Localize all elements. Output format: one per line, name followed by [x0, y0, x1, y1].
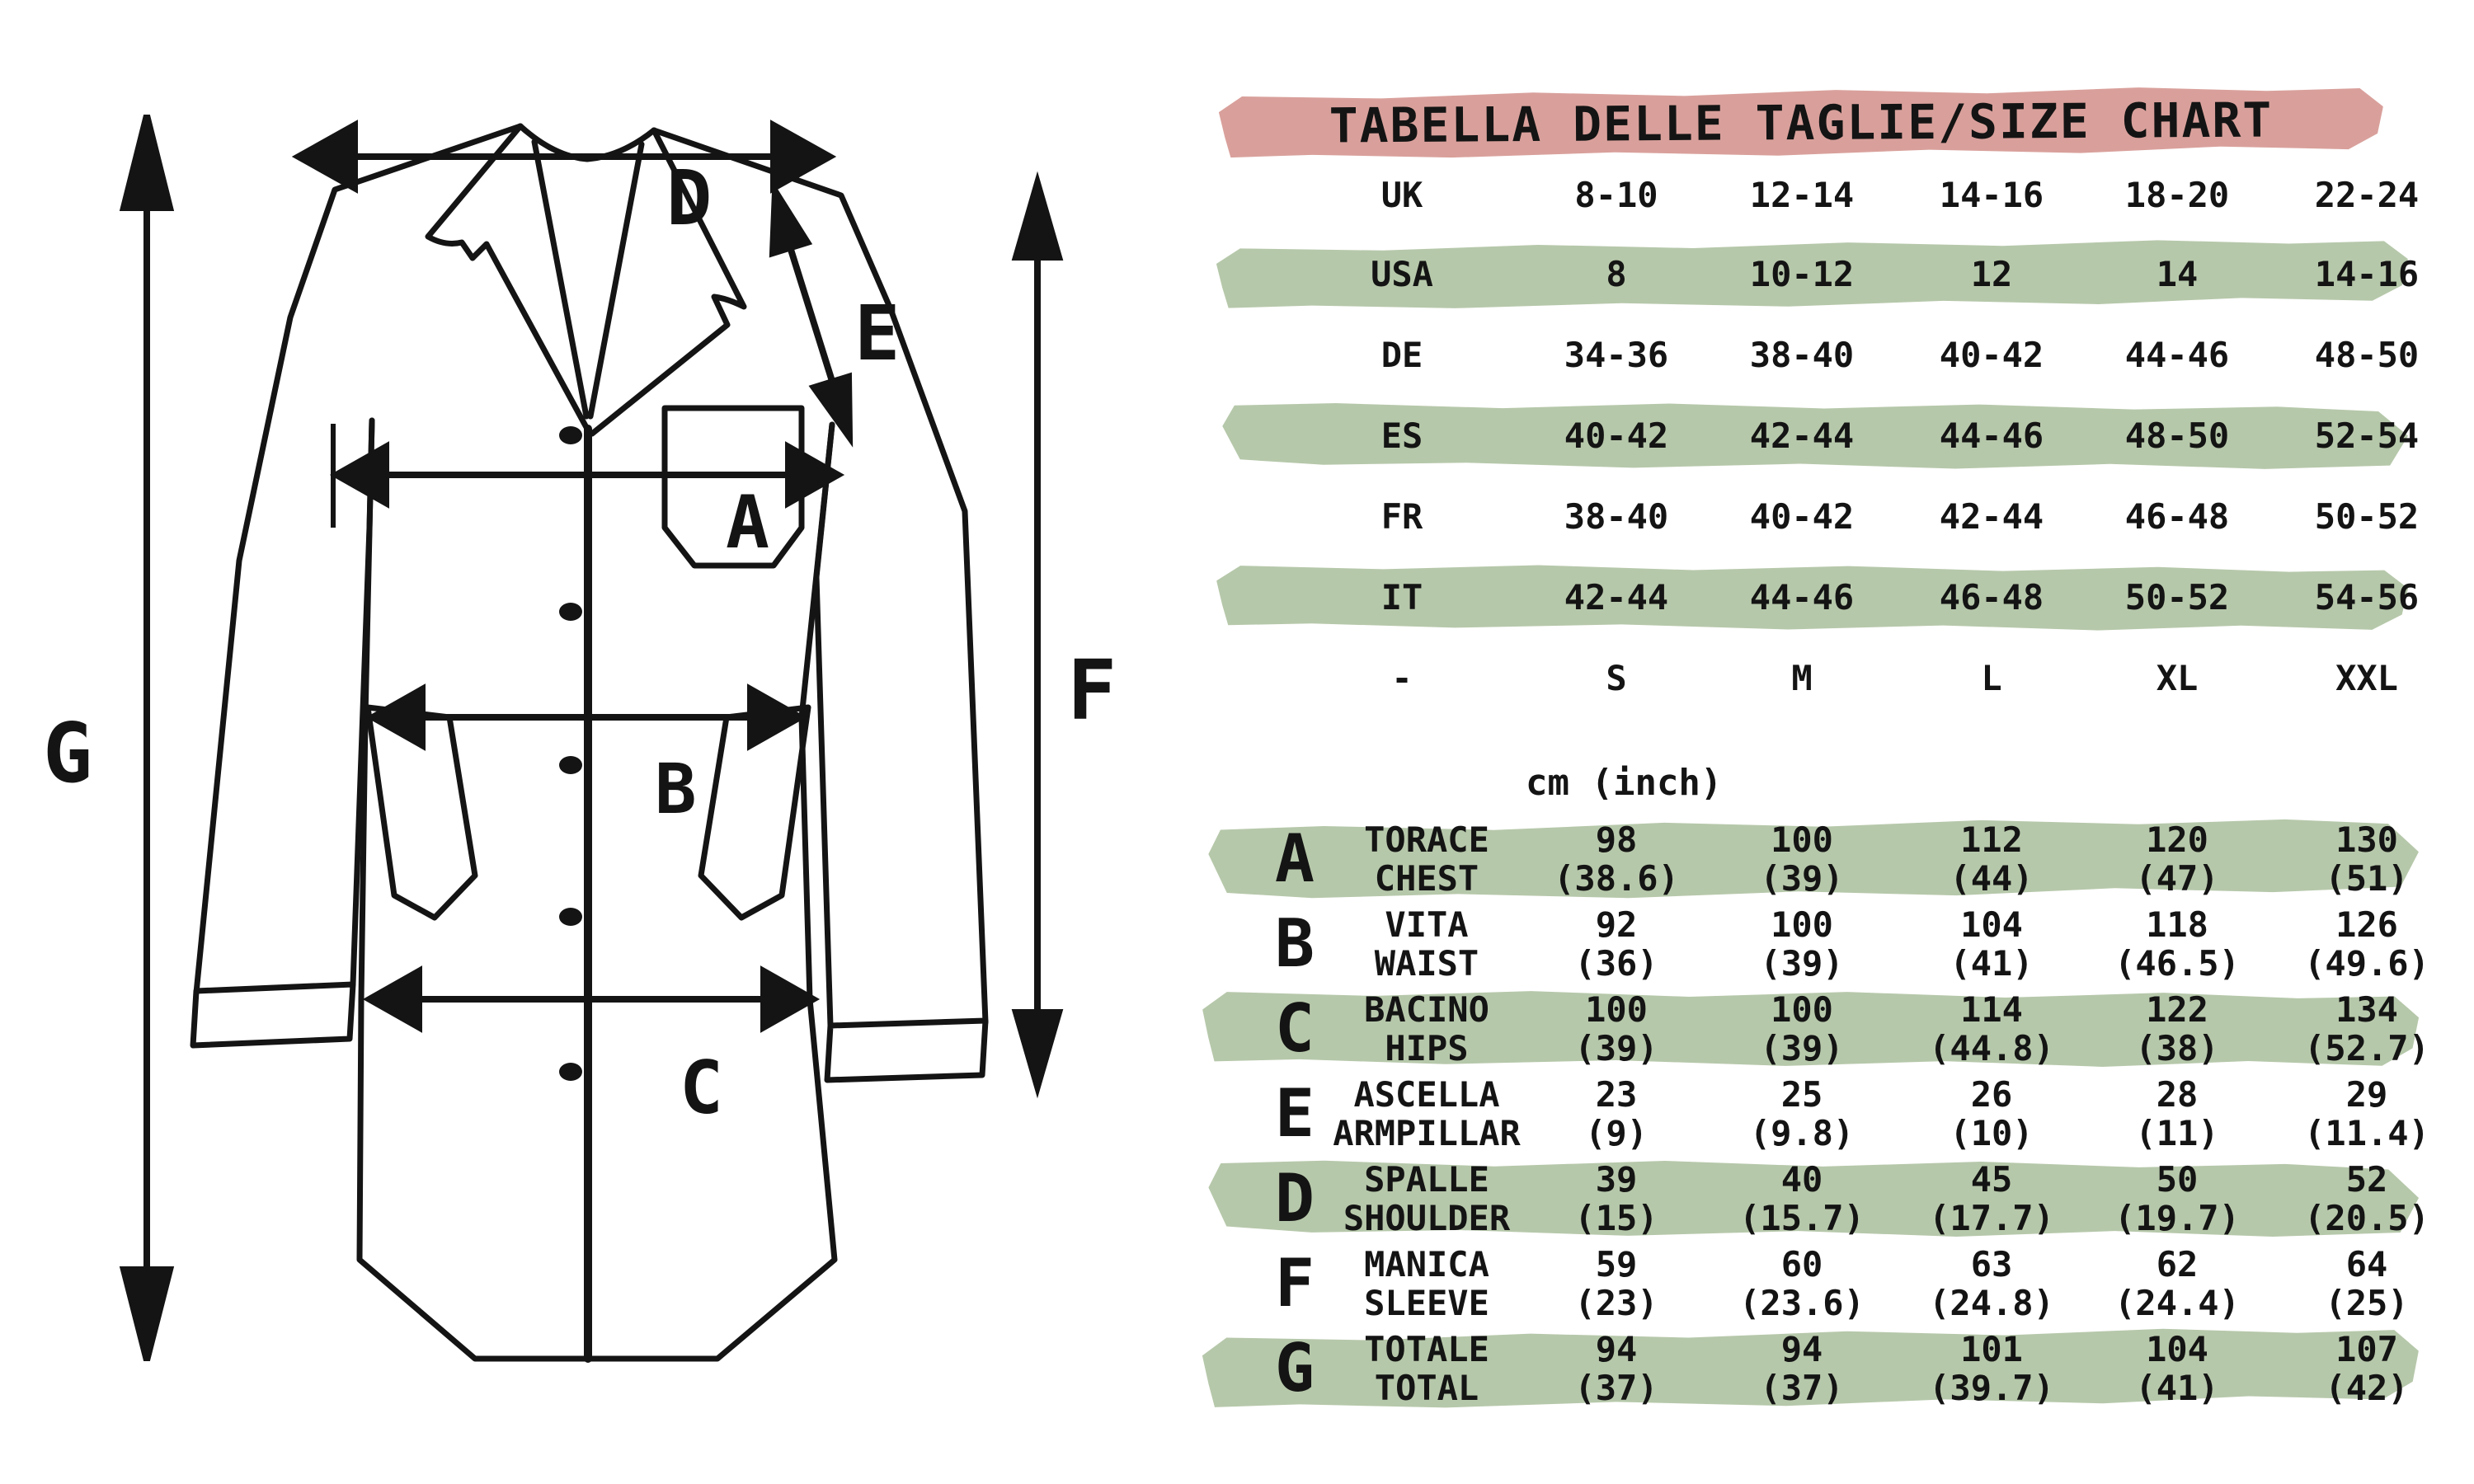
diagram-label-f: F — [1067, 642, 1117, 739]
value-inch: (37) — [1711, 1369, 1893, 1407]
value-cm: 94 — [1526, 1330, 1707, 1369]
arrow-g — [124, 115, 170, 1360]
measurement-value: 120 (47) — [2086, 818, 2268, 900]
value-inch: (38) — [2086, 1029, 2268, 1068]
label-italian: TOTALE — [1328, 1330, 1526, 1369]
buttons — [559, 426, 582, 1081]
value-cm: 100 — [1711, 820, 1893, 859]
chart-title: TABELLA DELLE TAGLIE/SIZE CHART — [1219, 84, 2383, 162]
size-region-label: FR — [1262, 484, 1542, 550]
label-english: TOTAL — [1328, 1369, 1526, 1407]
size-value: 54-56 — [2276, 565, 2458, 631]
arrow-f — [1016, 183, 1059, 1087]
value-inch: (39) — [1526, 1029, 1707, 1068]
value-inch: (41) — [2086, 1369, 2268, 1407]
right-sleeve-inner — [816, 425, 832, 1026]
size-value: M — [1711, 646, 1893, 711]
measurement-value: 118 (46.5) — [2086, 903, 2268, 985]
garment-diagram: G D E A B C F — [0, 0, 1196, 1484]
arrow-e — [773, 191, 849, 437]
measurement-value: 50 (19.7) — [2086, 1158, 2268, 1240]
value-inch: (39.7) — [1901, 1369, 2082, 1407]
size-value: 10-12 — [1711, 242, 1893, 308]
size-value: 8-10 — [1526, 162, 1707, 228]
value-inch: (39) — [1711, 859, 1893, 898]
measurement-value: 112 (44) — [1901, 818, 2082, 900]
label-english: ARMPILLAR — [1328, 1114, 1526, 1153]
size-row-international: - S M L XL XXL — [1221, 646, 2412, 711]
label-english: WAIST — [1328, 944, 1526, 983]
measurement-value: 104 (41) — [2086, 1327, 2268, 1410]
size-value: 38-40 — [1526, 484, 1707, 550]
value-cm: 39 — [1526, 1160, 1707, 1199]
measurement-value: 62 (24.4) — [2086, 1242, 2268, 1325]
measurement-row-total: G TOTALE TOTAL 94 (37) 94 (37) 101 (39.7… — [1221, 1327, 2412, 1410]
size-chart-page: G D E A B C F TABELLA DELLE TAGLIE/SIZE … — [0, 0, 2474, 1484]
measurement-label: MANICA SLEEVE — [1328, 1242, 1526, 1325]
value-inch: (11) — [2086, 1114, 2268, 1153]
measurement-row-hips: C BACINO HIPS 100 (39) 100 (39) 114 (44.… — [1221, 988, 2412, 1070]
diagram-label-g: G — [43, 705, 92, 801]
size-value: XXL — [2276, 646, 2458, 711]
size-value: 8 — [1526, 242, 1707, 308]
measurement-value: 100 (39) — [1526, 988, 1707, 1070]
size-value: 52-54 — [2276, 403, 2458, 469]
value-inch: (15.7) — [1711, 1199, 1893, 1237]
value-cm: 101 — [1901, 1330, 2082, 1369]
size-row-it: IT 42-44 44-46 46-48 50-52 54-56 — [1221, 565, 2412, 631]
value-cm: 100 — [1711, 905, 1893, 944]
value-inch: (42) — [2276, 1369, 2458, 1407]
value-cm: 64 — [2276, 1245, 2458, 1284]
value-cm: 62 — [2086, 1245, 2268, 1284]
size-value: 40-42 — [1901, 322, 2082, 388]
label-italian: BACINO — [1328, 990, 1526, 1029]
measurement-row-waist: B VITA WAIST 92 (36) 100 (39) 104 (41) 1… — [1221, 903, 2412, 985]
label-english: HIPS — [1328, 1029, 1526, 1068]
size-value: 12-14 — [1711, 162, 1893, 228]
measurement-row-chest: A TORACE CHEST 98 (38.6) 100 (39) 112 (4… — [1221, 818, 2412, 900]
measurement-value: 40 (15.7) — [1711, 1158, 1893, 1240]
value-inch: (51) — [2276, 859, 2458, 898]
value-inch: (39) — [1711, 944, 1893, 983]
size-value: 38-40 — [1711, 322, 1893, 388]
label-italian: SPALLE — [1328, 1160, 1526, 1199]
size-chart-panel: TABELLA DELLE TAGLIE/SIZE CHART UK 8-10 … — [1196, 0, 2474, 1484]
size-value: 44-46 — [1901, 403, 2082, 469]
measurement-value: 114 (44.8) — [1901, 988, 2082, 1070]
value-inch: (9.8) — [1711, 1114, 1893, 1153]
size-value: 46-48 — [1901, 565, 2082, 631]
left-lapel — [428, 126, 588, 430]
value-inch: (38.6) — [1526, 859, 1707, 898]
size-value: 40-42 — [1526, 403, 1707, 469]
measurement-value: 45 (17.7) — [1901, 1158, 2082, 1240]
measurement-label: SPALLE SHOULDER — [1328, 1158, 1526, 1240]
measurement-value: 28 (11) — [2086, 1073, 2268, 1155]
measurement-value: 134 (52.7) — [2276, 988, 2458, 1070]
value-inch: (9) — [1526, 1114, 1707, 1153]
label-italian: VITA — [1328, 905, 1526, 944]
label-english: SHOULDER — [1328, 1199, 1526, 1237]
size-value: 44-46 — [1711, 565, 1893, 631]
button — [559, 756, 582, 774]
measurement-value: 94 (37) — [1711, 1327, 1893, 1410]
value-cm: 100 — [1711, 990, 1893, 1029]
value-cm: 120 — [2086, 820, 2268, 859]
value-cm: 63 — [1901, 1245, 2082, 1284]
value-cm: 50 — [2086, 1160, 2268, 1199]
size-value: 42-44 — [1901, 484, 2082, 550]
button — [559, 426, 582, 444]
measurement-value: 107 (42) — [2276, 1327, 2458, 1410]
chart-title-text: TABELLA DELLE TAGLIE/SIZE CHART — [1329, 92, 2274, 154]
size-region-label: USA — [1262, 242, 1542, 308]
value-inch: (24.4) — [2086, 1284, 2268, 1322]
measurement-value: 26 (10) — [1901, 1073, 2082, 1155]
value-cm: 52 — [2276, 1160, 2458, 1199]
neckline-right — [590, 144, 642, 416]
value-cm: 98 — [1526, 820, 1707, 859]
measurement-value: 100 (39) — [1711, 988, 1893, 1070]
size-value: S — [1526, 646, 1707, 711]
measurement-value: 23 (9) — [1526, 1073, 1707, 1155]
value-cm: 28 — [2086, 1075, 2268, 1114]
measurement-value: 130 (51) — [2276, 818, 2458, 900]
value-cm: 94 — [1711, 1330, 1893, 1369]
measurement-row-shoulder: D SPALLE SHOULDER 39 (15) 40 (15.7) 45 (… — [1221, 1158, 2412, 1240]
button — [559, 1063, 582, 1081]
value-inch: (11.4) — [2276, 1114, 2458, 1153]
size-region-label: UK — [1262, 162, 1542, 228]
value-inch: (37) — [1526, 1369, 1707, 1407]
right-cuff — [827, 1021, 985, 1080]
value-cm: 107 — [2276, 1330, 2458, 1369]
measurement-value: 60 (23.6) — [1711, 1242, 1893, 1325]
label-italian: ASCELLA — [1328, 1075, 1526, 1114]
value-inch: (47) — [2086, 859, 2268, 898]
value-cm: 23 — [1526, 1075, 1707, 1114]
size-value: 50-52 — [2276, 484, 2458, 550]
size-row-es: ES 40-42 42-44 44-46 48-50 52-54 — [1221, 403, 2412, 469]
size-region-label: ES — [1262, 403, 1542, 469]
measurement-value: 39 (15) — [1526, 1158, 1707, 1240]
diagram-label-d: D — [666, 154, 712, 242]
label-english: SLEEVE — [1328, 1284, 1526, 1322]
measurement-value: 100 (39) — [1711, 818, 1893, 900]
measurement-label: TOTALE TOTAL — [1328, 1327, 1526, 1410]
value-cm: 59 — [1526, 1245, 1707, 1284]
size-region-label: - — [1262, 646, 1542, 711]
measurement-label: ASCELLA ARMPILLAR — [1328, 1073, 1526, 1155]
value-cm: 29 — [2276, 1075, 2458, 1114]
size-value: L — [1901, 646, 2082, 711]
value-inch: (36) — [1526, 944, 1707, 983]
value-inch: (49.6) — [2276, 944, 2458, 983]
size-row-usa: USA 8 10-12 12 14 14-16 — [1221, 242, 2412, 308]
size-value: 22-24 — [2276, 162, 2458, 228]
measurement-value: 29 (11.4) — [2276, 1073, 2458, 1155]
size-value: 48-50 — [2086, 403, 2268, 469]
measurement-value: 25 (9.8) — [1711, 1073, 1893, 1155]
size-value: 42-44 — [1526, 565, 1707, 631]
value-inch: (23.6) — [1711, 1284, 1893, 1322]
size-value: 18-20 — [2086, 162, 2268, 228]
size-value: 12 — [1901, 242, 2082, 308]
measurement-row-sleeve: F MANICA SLEEVE 59 (23) 60 (23.6) 63 (24… — [1221, 1242, 2412, 1325]
value-cm: 118 — [2086, 905, 2268, 944]
label-italian: TORACE — [1328, 820, 1526, 859]
value-inch: (41) — [1901, 944, 2082, 983]
size-value: 42-44 — [1711, 403, 1893, 469]
value-inch: (39) — [1711, 1029, 1893, 1068]
size-region-label: DE — [1262, 322, 1542, 388]
diagram-label-e: E — [854, 289, 900, 378]
value-cm: 112 — [1901, 820, 2082, 859]
measurement-label: VITA WAIST — [1328, 903, 1526, 985]
size-value: 14-16 — [2276, 242, 2458, 308]
value-cm: 45 — [1901, 1160, 2082, 1199]
measurement-value: 64 (25) — [2276, 1242, 2458, 1325]
size-value: 14 — [2086, 242, 2268, 308]
size-row-de: DE 34-36 38-40 40-42 44-46 48-50 — [1221, 322, 2412, 388]
value-cm: 126 — [2276, 905, 2458, 944]
measurement-row-armpit: E ASCELLA ARMPILLAR 23 (9) 25 (9.8) 26 (… — [1221, 1073, 2412, 1155]
measurement-value: 63 (24.8) — [1901, 1242, 2082, 1325]
value-cm: 92 — [1526, 905, 1707, 944]
value-inch: (10) — [1901, 1114, 2082, 1153]
diagram-label-b: B — [655, 749, 697, 829]
value-cm: 25 — [1711, 1075, 1893, 1114]
right-sleeve — [654, 130, 985, 1022]
value-cm: 130 — [2276, 820, 2458, 859]
value-cm: 60 — [1711, 1245, 1893, 1284]
arrow-d — [299, 125, 830, 188]
button — [559, 603, 582, 621]
value-inch: (23) — [1526, 1284, 1707, 1322]
measurement-value: 122 (38) — [2086, 988, 2268, 1070]
size-row-fr: FR 38-40 40-42 42-44 46-48 50-52 — [1221, 484, 2412, 550]
size-value: 50-52 — [2086, 565, 2268, 631]
measurement-value: 94 (37) — [1526, 1327, 1707, 1410]
value-inch: (44.8) — [1901, 1029, 2082, 1068]
diagram-label-c: C — [680, 1045, 723, 1130]
label-italian: MANICA — [1328, 1245, 1526, 1284]
value-cm: 134 — [2276, 990, 2458, 1029]
size-value: 44-46 — [2086, 322, 2268, 388]
size-value: 46-48 — [2086, 484, 2268, 550]
measurement-value: 100 (39) — [1711, 903, 1893, 985]
size-value: 34-36 — [1526, 322, 1707, 388]
size-region-label: IT — [1262, 565, 1542, 631]
value-inch: (25) — [2276, 1284, 2458, 1322]
value-inch: (20.5) — [2276, 1199, 2458, 1237]
value-inch: (52.7) — [2276, 1029, 2458, 1068]
button — [559, 908, 582, 926]
value-cm: 122 — [2086, 990, 2268, 1029]
measurement-value: 59 (23) — [1526, 1242, 1707, 1325]
size-value: XL — [2086, 646, 2268, 711]
value-cm: 104 — [1901, 905, 2082, 944]
measurement-value: 104 (41) — [1901, 903, 2082, 985]
diagram-label-a: A — [726, 480, 769, 565]
units-label: cm (inch) — [1526, 758, 1707, 808]
measurement-label: BACINO HIPS — [1328, 988, 1526, 1070]
left-cuff — [193, 984, 353, 1045]
size-row-uk: UK 8-10 12-14 14-16 18-20 22-24 — [1221, 162, 2412, 228]
value-cm: 100 — [1526, 990, 1707, 1029]
size-value: 14-16 — [1901, 162, 2082, 228]
value-inch: (19.7) — [2086, 1199, 2268, 1237]
label-english: CHEST — [1328, 859, 1526, 898]
measurement-value: 126 (49.6) — [2276, 903, 2458, 985]
value-cm: 26 — [1901, 1075, 2082, 1114]
size-value: 40-42 — [1711, 484, 1893, 550]
measurement-label: TORACE CHEST — [1328, 818, 1526, 900]
measurement-value: 101 (39.7) — [1901, 1327, 2082, 1410]
value-cm: 40 — [1711, 1160, 1893, 1199]
value-inch: (24.8) — [1901, 1284, 2082, 1322]
value-inch: (44) — [1901, 859, 2082, 898]
measurement-value: 98 (38.6) — [1526, 818, 1707, 900]
value-cm: 104 — [2086, 1330, 2268, 1369]
size-value: 48-50 — [2276, 322, 2458, 388]
measurement-value: 52 (20.5) — [2276, 1158, 2458, 1240]
value-inch: (46.5) — [2086, 944, 2268, 983]
value-cm: 114 — [1901, 990, 2082, 1029]
value-inch: (17.7) — [1901, 1199, 2082, 1237]
diagram-letter-labels: G D E A B C F — [43, 154, 1117, 1130]
value-inch: (15) — [1526, 1199, 1707, 1237]
measurement-value: 92 (36) — [1526, 903, 1707, 985]
